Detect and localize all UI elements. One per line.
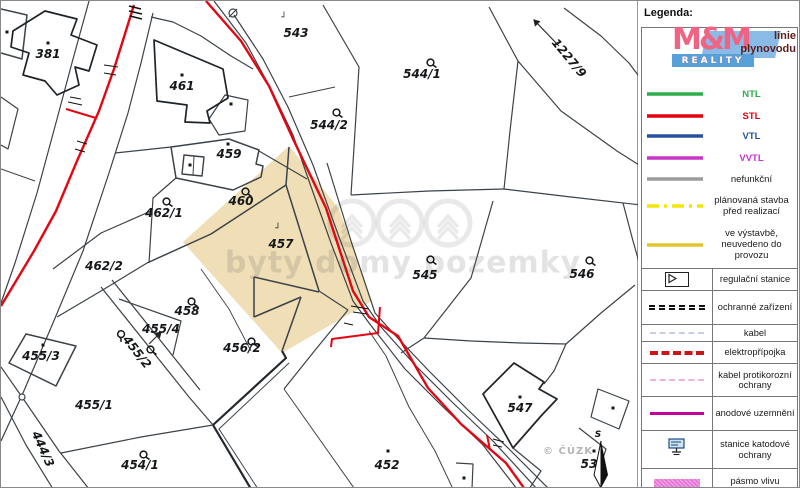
- corner-land-use-icon: ┘: [275, 224, 280, 234]
- building-dot: [463, 477, 466, 480]
- legend-symbol-label: pásmo vlivu anodového uzemnění SKAO: [712, 469, 797, 488]
- building-dot: [42, 344, 45, 347]
- legend-title: Legenda:: [644, 7, 693, 19]
- legend-row-label: nefunkční: [708, 174, 797, 185]
- legend-row-plnovan: plánovaná stavba před realizací: [642, 186, 797, 225]
- legend-row-label: VTL: [708, 131, 797, 142]
- parcel-label-462-2: 462/2: [85, 259, 123, 273]
- building-dot: [519, 396, 522, 399]
- legend-panel: Legenda: M&M REALITY linie plynovodu NTL…: [638, 1, 800, 488]
- parcel-label-457: 457: [268, 237, 293, 251]
- building-dot: [230, 103, 233, 106]
- parcel-label-545: 545: [412, 268, 437, 282]
- parcel-label-455-4: 455/4: [142, 322, 180, 336]
- parcel-label-452: 452: [374, 458, 399, 472]
- anode-grounding-icon: [650, 412, 704, 415]
- building-dot: [181, 74, 184, 77]
- line-swatch-icon: [642, 175, 708, 183]
- cadastral-map-screenshot: byty domy pozemky © ČÚZK S 381461543544/…: [0, 0, 800, 488]
- legend-symbol-row-anticorrosion-cable: kabel protikorozní ochrany: [642, 363, 797, 396]
- legend-symbol-label: elektropřípojka: [712, 342, 797, 363]
- electric-connection-icon: [650, 351, 704, 355]
- parcel-label-455-1: 455/1: [75, 398, 113, 412]
- legend-symbol-row-anode-grounding: anodové uzemnění: [642, 396, 797, 430]
- legend-row-ve: ve výstavbě, neuvedeno do provozu: [642, 225, 797, 264]
- line-swatch-icon: [642, 154, 708, 162]
- parcel-label-546: 546: [569, 267, 594, 281]
- legend-symbol-row-cathodic-station: stanice katodové ochrany: [642, 430, 797, 468]
- legend-symbol-label: stanice katodové ochrany: [712, 431, 797, 468]
- map-canvas: byty domy pozemky © ČÚZK S 381461543544/…: [1, 1, 638, 488]
- legend-row-stl: STL: [642, 106, 797, 126]
- legend-symbol-row-electric-connection: elektropřípojka: [642, 341, 797, 363]
- parcel-label-543: 543: [283, 26, 308, 40]
- line-swatch-icon: [642, 241, 708, 249]
- legend-row-label: STL: [708, 111, 797, 122]
- parcel-label-381: 381: [35, 47, 60, 61]
- building-dot: [6, 31, 9, 34]
- parcel-label-459: 459: [216, 147, 241, 161]
- parcel-label-544-2: 544/2: [310, 118, 348, 132]
- legend-row-label: NTL: [708, 89, 797, 100]
- legend-symbol-label: kabel: [712, 325, 797, 341]
- map-geometry: [1, 1, 638, 488]
- legend-symbol-label: regulační stanice: [712, 269, 797, 290]
- building-dot: [227, 143, 230, 146]
- legend-symbol-row-regulation-station: regulační stanice: [642, 268, 797, 290]
- legend-symbol-row-protective-device: ochranné zařízení: [642, 290, 797, 324]
- parcel-label-455-3: 455/3: [22, 349, 60, 363]
- legend-box: M&M REALITY linie plynovodu NTLSTLVTLVVT…: [641, 27, 798, 488]
- legend-symbol-row-cable: kabel: [642, 324, 797, 341]
- skao-zone-icon: [654, 479, 700, 488]
- parcel-label-547: 547: [507, 401, 532, 415]
- building-dot: [387, 450, 390, 453]
- cathodic-station-icon: [667, 438, 687, 461]
- building-dot: [593, 450, 596, 453]
- legend-row-label: ve výstavbě, neuvedeno do provozu: [708, 228, 797, 261]
- legend-row-vvtl: VVTL: [642, 148, 797, 168]
- legend-row-label: VVTL: [708, 153, 797, 164]
- legend-symbol-row-skao-zone: pásmo vlivu anodového uzemnění SKAO: [642, 468, 797, 488]
- logo-sub-label: REALITY: [682, 56, 745, 66]
- building-dot: [189, 164, 192, 167]
- line-swatch-icon: [642, 132, 708, 140]
- building-dot: [612, 407, 615, 410]
- line-swatch-icon: [642, 90, 708, 98]
- parcel-label-461: 461: [169, 79, 194, 93]
- line-swatch-icon: [642, 112, 708, 120]
- building-outlines: [11, 11, 228, 123]
- copyright-watermark: © ČÚZK: [543, 446, 593, 457]
- cable-icon: [650, 332, 704, 334]
- parcel-label-53: 53: [581, 457, 598, 471]
- line-swatch-icon: [642, 202, 708, 210]
- watermark-logo-circles: [330, 201, 470, 245]
- legend-row-label: plánovaná stavba před realizací: [708, 195, 797, 217]
- legend-header: linie plynovodu: [720, 30, 796, 56]
- legend-row-ntl: NTL: [642, 84, 797, 104]
- regulation-station-icon: [665, 272, 689, 287]
- legend-symbol-label: anodové uzemnění: [712, 397, 797, 430]
- legend-row-vtl: VTL: [642, 126, 797, 146]
- protective-device-icon: [649, 304, 705, 312]
- building-dot: [47, 42, 50, 45]
- legend-symbol-label: ochranné zařízení: [712, 291, 797, 324]
- north-label: S: [595, 430, 601, 440]
- legend-symbol-label: kabel protikorozní ochrany: [712, 364, 797, 396]
- corner-land-use-icon: ┘: [281, 13, 286, 23]
- anticorrosion-cable-icon: [650, 379, 704, 381]
